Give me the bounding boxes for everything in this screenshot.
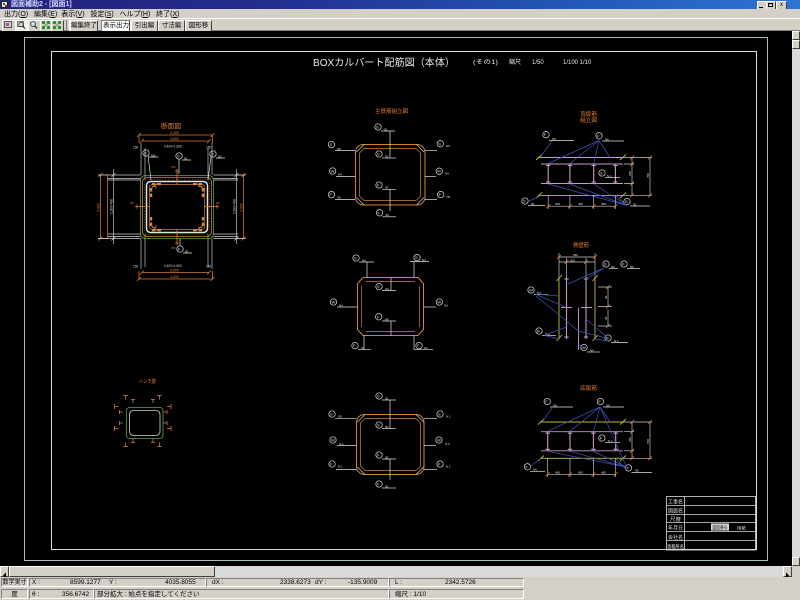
- svg-text:F: F: [597, 133, 600, 138]
- svg-text:W: W: [332, 300, 336, 305]
- svg-text:W5: W5: [171, 246, 176, 250]
- svg-text:S: S: [604, 262, 607, 267]
- svg-text:250: 250: [570, 258, 575, 262]
- svg-text:S: S: [354, 256, 357, 261]
- svg-text:F: F: [378, 210, 381, 215]
- svg-text:50: 50: [385, 185, 389, 189]
- svg-text:N4: N4: [385, 287, 389, 291]
- svg-text:50: 50: [384, 127, 388, 131]
- svg-text:450: 450: [601, 202, 606, 206]
- svg-text:F: F: [353, 343, 356, 348]
- svg-text:N4: N4: [422, 258, 426, 262]
- svg-text:N.1: N.1: [608, 439, 613, 443]
- svg-text:W: W: [582, 345, 586, 350]
- svg-text:W: W: [331, 169, 335, 174]
- svg-text:S: S: [376, 125, 379, 130]
- svg-text:4,400: 4,400: [170, 131, 179, 135]
- svg-text:N6: N6: [635, 469, 639, 473]
- svg-text:W: W: [437, 300, 441, 305]
- svg-text:H5: H5: [130, 201, 134, 205]
- svg-text:S: S: [330, 412, 333, 417]
- svg-text:用紙: 用紙: [737, 525, 746, 531]
- svg-text:頂版筋: 頂版筋: [580, 110, 597, 118]
- svg-text:F: F: [622, 262, 625, 267]
- svg-text:N4: N4: [339, 303, 343, 307]
- svg-text:N6: N6: [606, 403, 610, 407]
- svg-text:F: F: [330, 462, 333, 467]
- svg-text:W: W: [529, 288, 533, 293]
- svg-text:尺度: 尺度: [670, 516, 681, 523]
- svg-text:150: 150: [206, 265, 212, 269]
- svg-text:450: 450: [578, 470, 583, 474]
- svg-text:700: 700: [646, 439, 650, 444]
- svg-text:図面名: 図面名: [668, 508, 683, 515]
- svg-text:(その1): (その1): [473, 59, 498, 66]
- svg-text:N4: N4: [338, 173, 342, 177]
- svg-text:H5: H5: [216, 201, 220, 205]
- svg-text:700: 700: [646, 173, 650, 178]
- svg-text:S: S: [438, 412, 441, 417]
- svg-text:3,600: 3,600: [170, 137, 179, 141]
- svg-text:S: S: [625, 199, 628, 204]
- svg-text:S: S: [377, 423, 380, 428]
- svg-text:S: S: [377, 284, 380, 289]
- svg-text:250: 250: [628, 437, 632, 442]
- svg-text:BOXカルバート配筋図（本体）: BOXカルバート配筋図（本体）: [313, 56, 455, 69]
- svg-text:N4: N4: [385, 317, 389, 321]
- svg-text:N.3: N.3: [445, 442, 450, 446]
- svg-text:50: 50: [218, 154, 222, 158]
- svg-text:N.1: N.1: [607, 174, 612, 178]
- svg-text:1,500×400: 1,500×400: [110, 199, 114, 214]
- svg-text:W: W: [437, 438, 441, 443]
- svg-text:250: 250: [628, 171, 632, 176]
- svg-text:W: W: [437, 169, 441, 174]
- svg-text:N.1: N.1: [339, 442, 344, 446]
- svg-text:350: 350: [573, 253, 578, 257]
- svg-text:B: B: [537, 329, 540, 334]
- svg-text:N5: N5: [337, 147, 341, 151]
- svg-text:40: 40: [604, 316, 608, 320]
- svg-text:N5: N5: [447, 195, 451, 199]
- svg-text:N1: N1: [424, 346, 428, 350]
- svg-text:N6: N6: [553, 403, 557, 407]
- svg-text:5@: 5@: [151, 153, 156, 157]
- svg-text:50: 50: [385, 154, 389, 158]
- svg-text:150: 150: [133, 265, 139, 269]
- svg-text:N4: N4: [362, 258, 366, 262]
- svg-text:1/100 1/10: 1/100 1/10: [563, 60, 592, 66]
- svg-text:N3: N3: [444, 303, 448, 307]
- svg-text:450: 450: [578, 202, 583, 206]
- svg-text:N.1: N.1: [446, 414, 451, 418]
- svg-text:事務所名: 事務所名: [667, 543, 684, 550]
- svg-text:F: F: [545, 399, 548, 404]
- svg-text:縮尺: 縮尺: [509, 58, 521, 66]
- svg-text:F: F: [330, 192, 333, 197]
- svg-text:4,400: 4,400: [170, 275, 179, 279]
- svg-text:N6: N6: [630, 265, 634, 269]
- svg-text:N4: N4: [445, 171, 449, 175]
- svg-text:3,600: 3,600: [170, 269, 179, 273]
- svg-text:450: 450: [555, 470, 560, 474]
- svg-text:S: S: [438, 141, 441, 146]
- svg-text:N5: N5: [338, 415, 342, 419]
- svg-text:F: F: [417, 343, 420, 348]
- svg-text:50: 50: [531, 202, 535, 206]
- svg-text:底版筋: 底版筋: [580, 384, 597, 392]
- svg-text:F: F: [544, 132, 547, 137]
- svg-text:断面図: 断面図: [161, 121, 181, 130]
- svg-text:150: 150: [206, 146, 212, 150]
- svg-text:4,400: 4,400: [97, 203, 101, 212]
- svg-text:F: F: [600, 436, 603, 441]
- svg-text:50: 50: [385, 396, 389, 400]
- svg-text:4,400: 4,400: [240, 203, 244, 212]
- svg-text:側壁筋: 側壁筋: [573, 241, 589, 249]
- svg-text:B: B: [606, 336, 609, 341]
- svg-text:S: S: [377, 394, 380, 399]
- svg-text:N5: N5: [337, 196, 341, 200]
- svg-text:50: 50: [184, 156, 188, 160]
- svg-text:W: W: [331, 438, 335, 443]
- svg-text:F: F: [525, 464, 528, 469]
- svg-text:150: 150: [133, 146, 139, 150]
- svg-text:F: F: [377, 453, 380, 458]
- svg-text:F: F: [598, 399, 601, 404]
- svg-text:組立図: 組立図: [580, 116, 597, 124]
- svg-text:450: 450: [601, 470, 606, 474]
- svg-text:S: S: [600, 171, 603, 176]
- svg-text:50: 50: [385, 455, 389, 459]
- svg-text:N1: N1: [361, 346, 365, 350]
- svg-text:1/50: 1/50: [532, 60, 544, 66]
- svg-text:S: S: [415, 255, 418, 260]
- svg-text:会社名: 会社名: [668, 534, 683, 541]
- svg-text:S: S: [330, 142, 333, 147]
- svg-text:50: 50: [386, 213, 390, 217]
- svg-text:N.1: N.1: [338, 465, 343, 469]
- svg-text:F: F: [438, 462, 441, 467]
- svg-text:F: F: [377, 183, 380, 188]
- svg-text:工事名: 工事名: [668, 499, 683, 506]
- svg-text:1,500×400: 1,500×400: [233, 199, 237, 214]
- svg-text:4,400×1,500: 4,400×1,500: [164, 264, 182, 268]
- svg-text:S: S: [144, 151, 147, 156]
- svg-text:S: S: [211, 152, 214, 157]
- svg-text:F: F: [377, 482, 380, 487]
- svg-text:4,400×1,500: 4,400×1,500: [164, 145, 182, 149]
- svg-text:N6: N6: [605, 137, 609, 141]
- svg-text:F: F: [178, 247, 181, 252]
- svg-text:50: 50: [633, 202, 637, 206]
- svg-text:450: 450: [555, 202, 560, 206]
- svg-text:50: 50: [385, 484, 389, 488]
- svg-text:ハンチ筋: ハンチ筋: [139, 378, 156, 385]
- svg-text:50: 50: [385, 425, 389, 429]
- svg-text:図面番号: 図面番号: [713, 524, 728, 531]
- svg-text:W5: W5: [171, 165, 176, 169]
- svg-text:50: 50: [185, 249, 189, 253]
- svg-text:N.1: N.1: [446, 464, 451, 468]
- svg-text:年月日: 年月日: [668, 524, 683, 531]
- svg-text:主鉄筋組立図: 主鉄筋組立図: [375, 107, 408, 115]
- svg-text:S: S: [177, 154, 180, 159]
- svg-text:S: S: [523, 199, 526, 204]
- svg-text:N6: N6: [533, 468, 537, 472]
- svg-text:F: F: [627, 465, 630, 470]
- svg-text:N6: N6: [552, 137, 556, 141]
- svg-text:S: S: [377, 152, 380, 157]
- svg-text:N6: N6: [611, 265, 615, 269]
- svg-text:N.1: N.1: [614, 339, 619, 343]
- svg-text:F: F: [439, 192, 442, 197]
- svg-text:N5: N5: [446, 144, 450, 148]
- svg-text:F: F: [377, 314, 380, 319]
- svg-text:40: 40: [604, 295, 608, 299]
- svg-text:N4: N4: [590, 348, 594, 352]
